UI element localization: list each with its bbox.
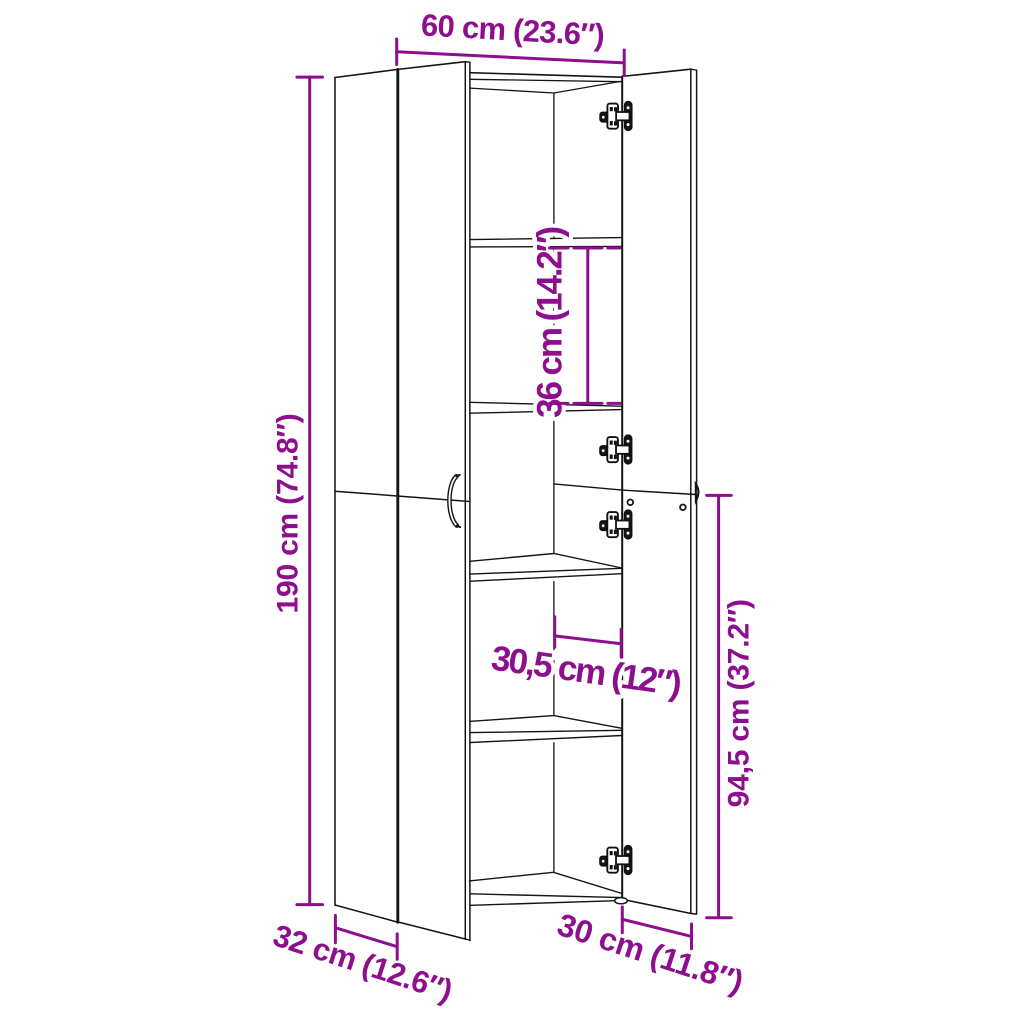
- svg-text:60 cm (23.6″): 60 cm (23.6″): [420, 7, 605, 52]
- svg-text:30 cm (11.8″): 30 cm (11.8″): [553, 906, 748, 1000]
- svg-text:36 cm (14.2″): 36 cm (14.2″): [531, 228, 570, 418]
- svg-text:190 cm (74.8″): 190 cm (74.8″): [272, 413, 305, 613]
- svg-text:94,5 cm (37.2″): 94,5 cm (37.2″): [723, 599, 756, 807]
- svg-text:30,5 cm (12″): 30,5 cm (12″): [489, 639, 683, 704]
- svg-text:32 cm (12.6″): 32 cm (12.6″): [269, 918, 457, 1009]
